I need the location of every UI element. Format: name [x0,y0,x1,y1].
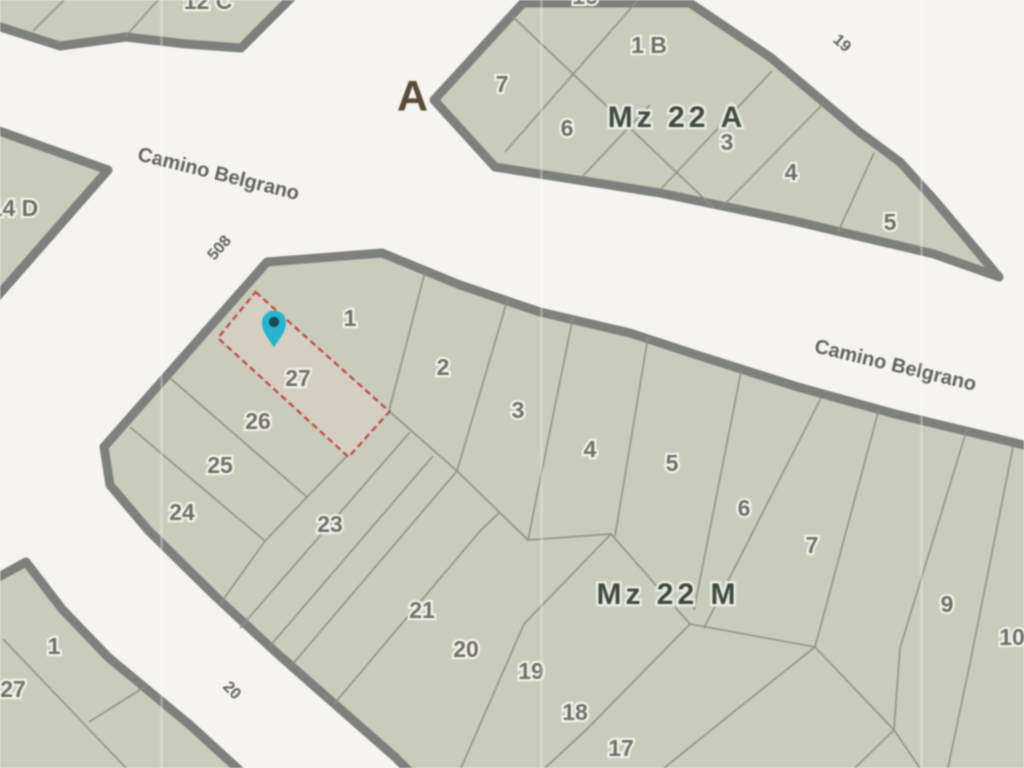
svg-text:16: 16 [572,0,598,9]
svg-text:5: 5 [884,209,897,235]
svg-text:9: 9 [941,591,954,617]
svg-text:6: 6 [738,495,751,521]
svg-text:4: 4 [584,436,597,462]
svg-text:25: 25 [207,452,233,478]
svg-text:4: 4 [785,159,798,185]
svg-text:2: 2 [437,354,450,380]
svg-text:6: 6 [561,115,574,141]
svg-text:3: 3 [512,397,525,423]
svg-text:17: 17 [608,735,634,761]
svg-text:Mz 22 M: Mz 22 M [596,578,739,611]
svg-text:10: 10 [999,624,1024,650]
svg-text:1: 1 [48,633,61,659]
svg-text:14 D: 14 D [0,195,38,221]
svg-text:27: 27 [285,365,311,391]
svg-text:A: A [397,73,428,121]
svg-text:20: 20 [453,636,479,662]
svg-text:27: 27 [0,676,26,702]
svg-text:26: 26 [245,408,271,434]
svg-text:5: 5 [666,450,679,476]
svg-text:21: 21 [409,597,435,623]
svg-text:23: 23 [317,511,343,537]
svg-text:12 C: 12 C [184,0,233,14]
svg-text:3: 3 [721,129,734,155]
svg-text:7: 7 [806,532,819,558]
svg-text:24: 24 [169,499,195,525]
svg-text:18: 18 [562,699,588,725]
svg-text:1: 1 [344,305,357,331]
svg-text:1 B: 1 B [631,32,667,58]
svg-text:7: 7 [496,71,509,97]
svg-text:19: 19 [518,658,544,684]
